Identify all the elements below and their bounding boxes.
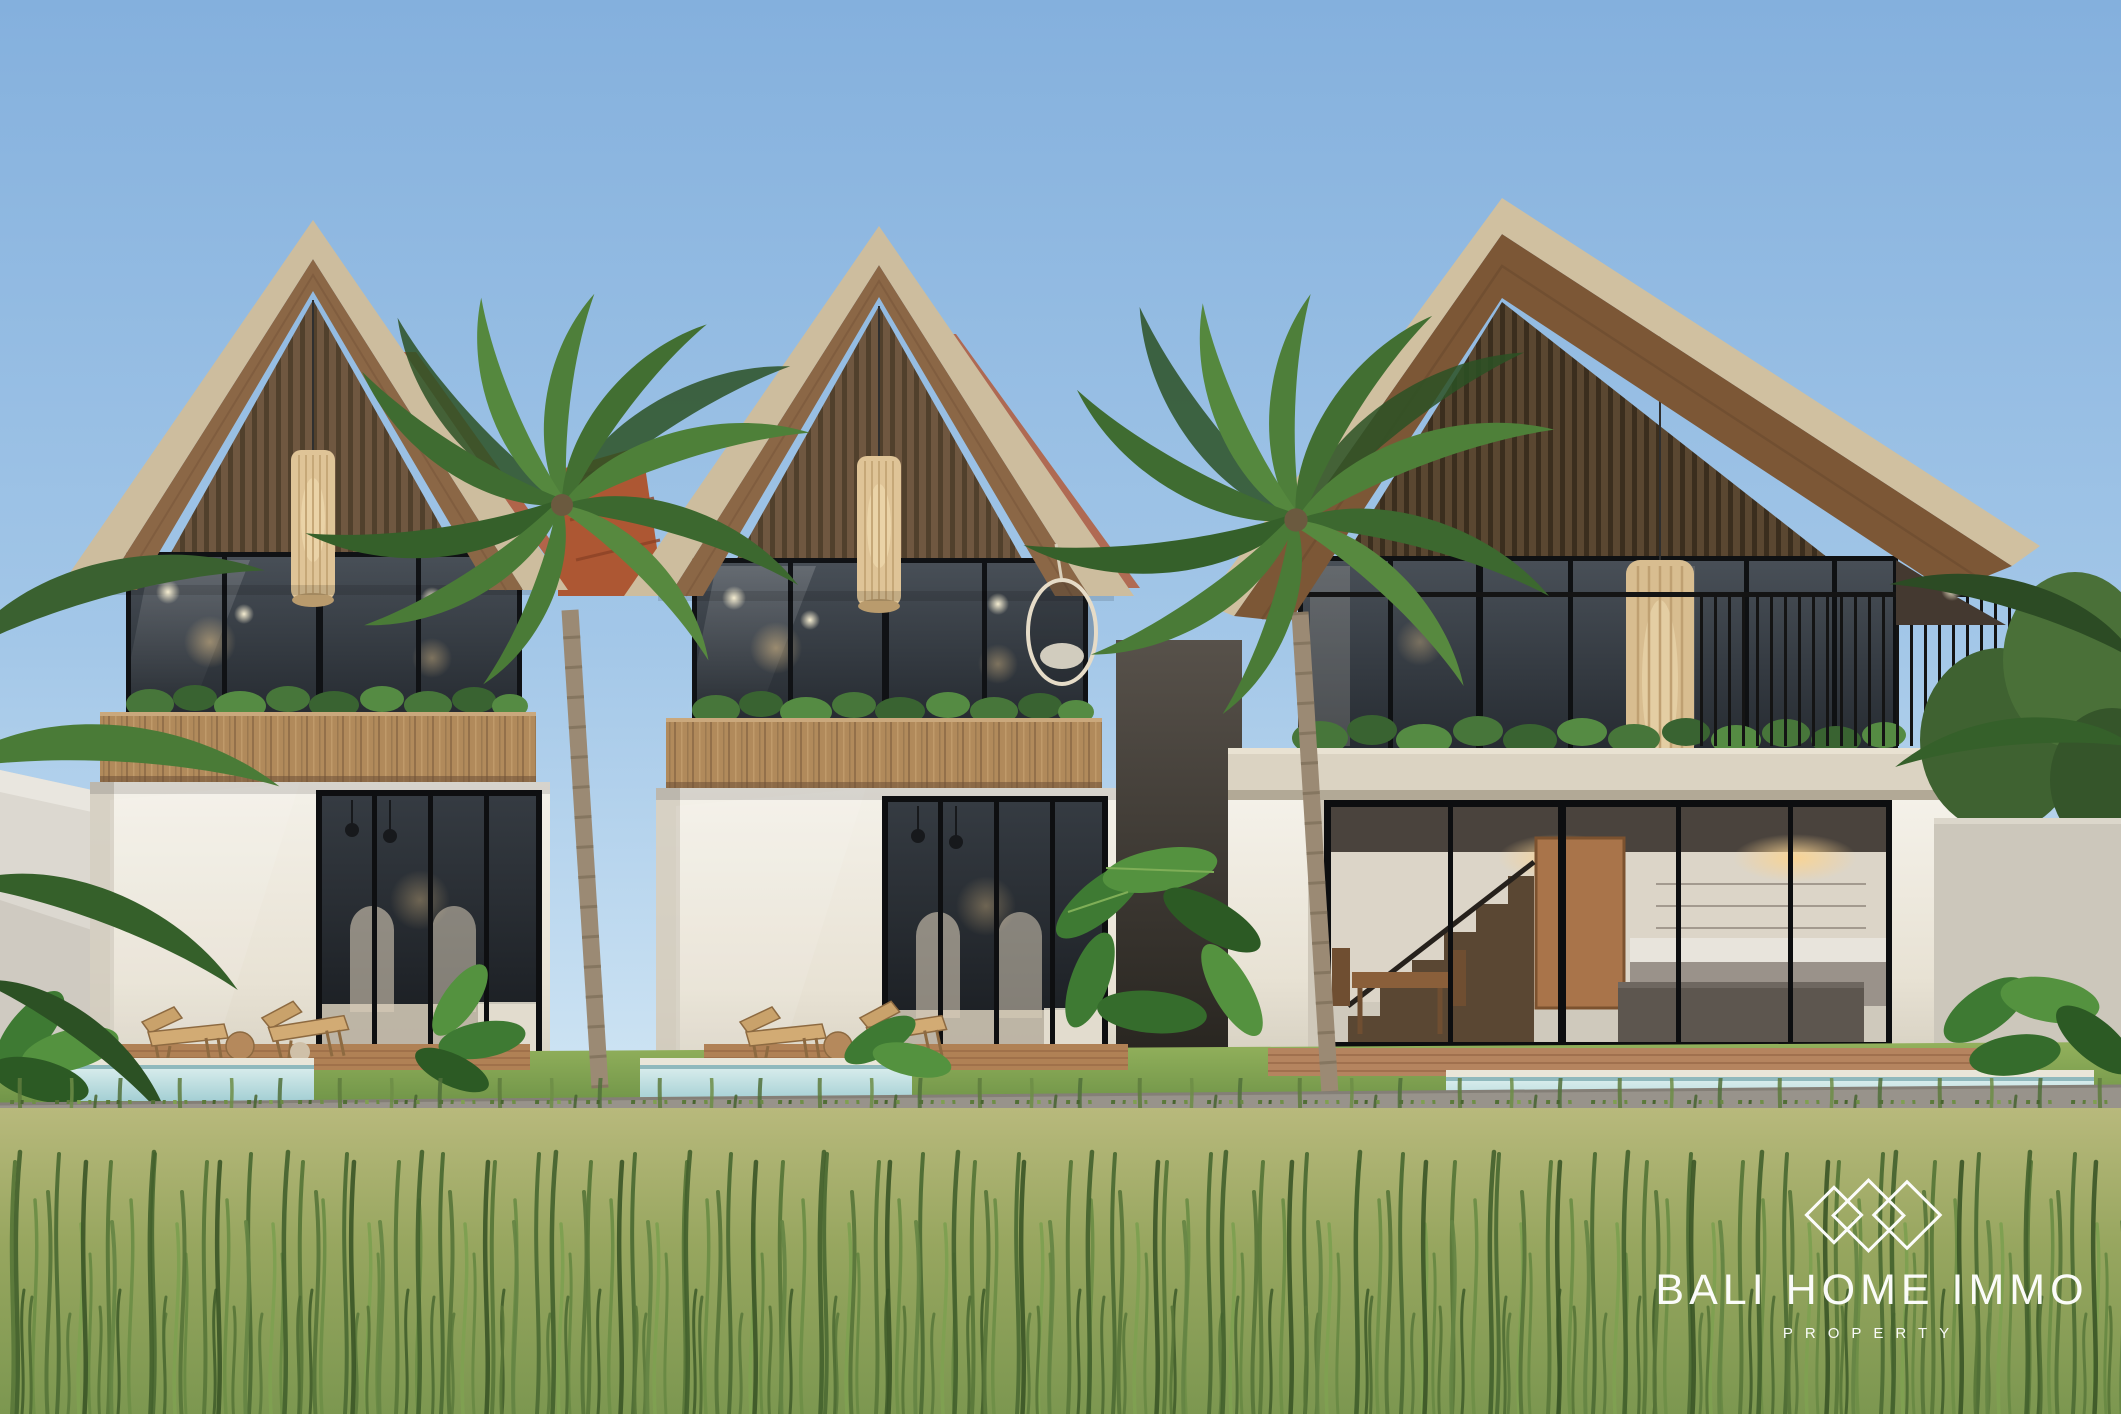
brand-watermark: BALI HOME IMMO PROPERTY xyxy=(1602,1178,2121,1342)
brand-name: BALI HOME IMMO xyxy=(1602,1266,2121,1315)
diamond-icon xyxy=(1831,1178,1906,1253)
kitchen-interior xyxy=(1324,800,1892,1048)
kitchen-island xyxy=(1618,982,1864,1042)
dining-table xyxy=(1352,972,1448,988)
wood-door xyxy=(1536,838,1624,1008)
three-diamond-logo-icon xyxy=(1602,1178,2121,1252)
brand-tagline: PROPERTY xyxy=(1602,1325,2121,1342)
render-image: BALI HOME IMMO PROPERTY xyxy=(0,0,2121,1414)
